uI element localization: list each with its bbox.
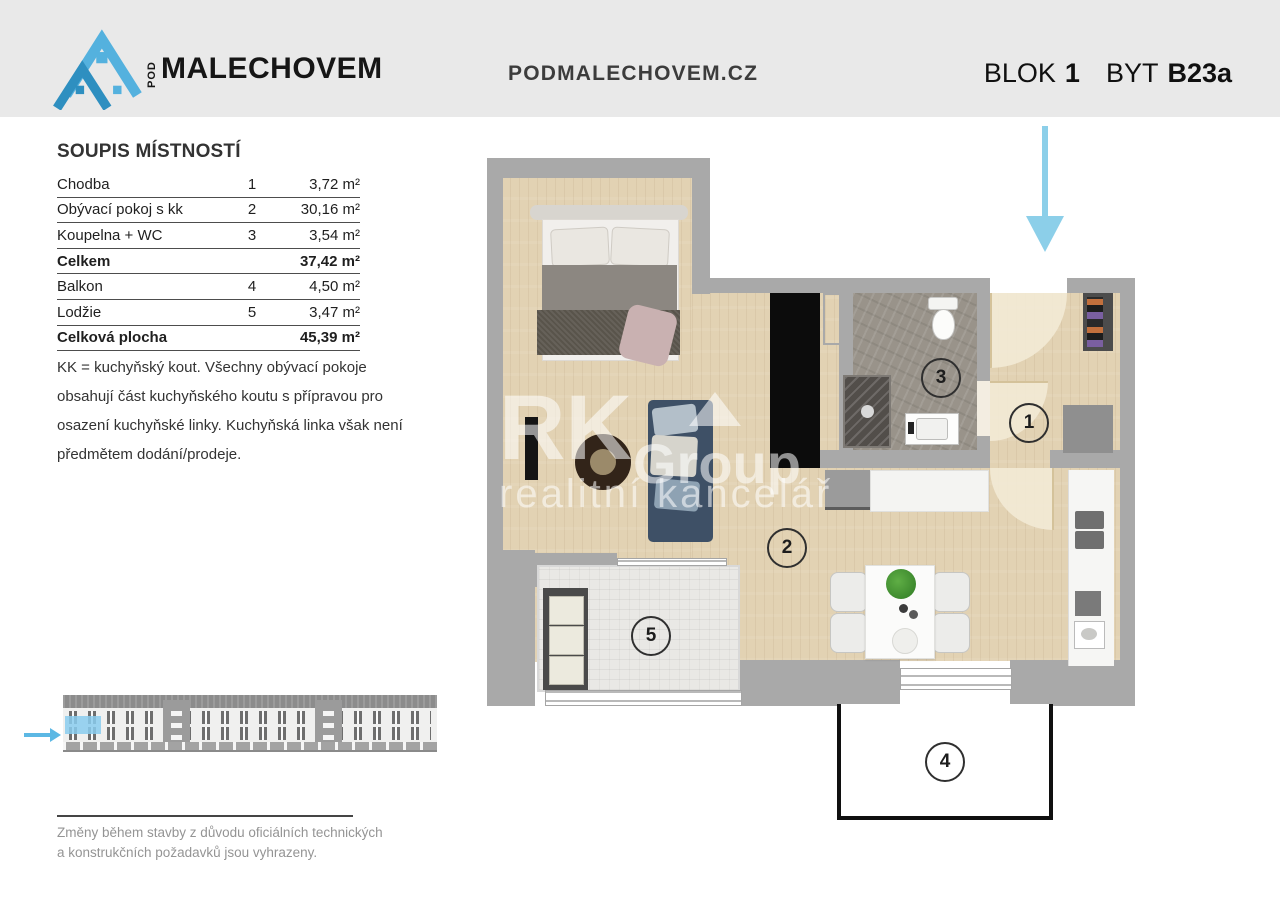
byt-label: BYT [1106,58,1159,89]
dining-chair [932,572,970,612]
cooktop [1075,531,1104,549]
kitchen-appliance [1075,591,1101,616]
wall [810,450,990,468]
sink-accessory [908,422,914,434]
plate [892,628,918,654]
bed-pillow [550,227,610,268]
room-number: 5 [232,304,272,321]
room-label-hallway: 1 [1009,403,1049,443]
balcony-sliding-door [900,668,1012,690]
elevation-stair-tower [163,700,190,744]
shoes [1087,297,1103,347]
table-decor [909,610,918,619]
unit-highlight [65,716,101,734]
bed-blanket [542,265,677,315]
loggia-window-strip [545,690,742,706]
room-number-text: 5 [646,625,657,647]
arrow-shaft [24,733,50,737]
room-number: 2 [232,201,272,218]
toilet-bowl [932,309,955,340]
room-area: 3,47 m² [272,304,360,321]
table-row: Celkem37,42 m² [57,249,360,275]
building-elevation [63,695,437,753]
kitchen-counter [1068,470,1114,666]
header: POD MALECHOVEM PODMALECHOVEM.CZ BLOK 1 B… [0,0,1280,117]
wall [977,293,990,381]
room-number-text: 2 [782,537,793,559]
block-value: 1 [1065,58,1080,89]
room-number-text: 1 [1024,412,1035,434]
room-number: 1 [232,176,272,193]
bathroom-door-opening [977,381,990,436]
loggia-shelf [543,588,588,690]
room-number-text: 3 [936,367,947,389]
unit-title: BLOK 1 BYT B23a [984,58,1232,89]
room-area: 3,54 m² [272,227,360,244]
wall [692,158,710,294]
cooktop [1075,511,1104,529]
room-number: 3 [232,227,272,244]
table-decor [899,604,908,613]
kitchen-note: KK = kuchyňský kout. Všechny obývací pok… [57,353,405,469]
elevation-ground-floor [63,742,437,750]
hallway-mat [1063,405,1113,453]
footer-divider [57,815,353,817]
room-name: Celková plocha [57,329,232,346]
watermark-subtitle: realitní kancelář [499,474,832,514]
room-name: Celkem [57,253,232,270]
room-label-balcony: 4 [925,742,965,782]
elevation-window-row [69,711,431,724]
watermark-rk: RK [499,382,632,474]
sink-basin [1081,628,1097,640]
table-row: Celková plocha45,39 m² [57,326,360,352]
shelf-cubby [549,626,584,655]
kitchen-island [870,470,989,512]
room-number-text: 4 [940,751,951,773]
website-text: PODMALECHOVEM.CZ [508,62,758,86]
table-row: Balkon44,50 m² [57,274,360,300]
bed-headboard [530,205,688,220]
room-label-bathroom: 3 [921,358,961,398]
elevation-window-row [69,727,431,740]
dining-chair [830,613,868,653]
tower-windows [171,704,182,740]
room-area: 3,72 m² [272,176,360,193]
table-row: Obývací pokoj s kk230,16 m² [57,198,360,224]
room-area: 4,50 m² [272,278,360,295]
byt-value: B23a [1167,58,1232,89]
wall [1010,660,1135,706]
wall [692,278,990,293]
room-name: Chodba [57,176,232,193]
shoe-rack [1083,293,1113,351]
room-label-loggia: 5 [631,616,671,656]
room-label-living: 2 [767,528,807,568]
elevation-roof [63,695,437,708]
page: POD MALECHOVEM PODMALECHOVEM.CZ BLOK 1 B… [0,0,1280,908]
room-name: Lodžie [57,304,232,321]
tower-windows [323,704,334,740]
logo-pod-text: POD [146,58,158,88]
kitchen-sink [1074,621,1105,649]
bed-pillow [610,227,670,268]
logo-name-text: MALECHOVEM [161,52,383,86]
room-list-title: SOUPIS MÍSTNOSTÍ [57,141,241,163]
dining-chair [830,572,868,612]
table-row: Chodba13,72 m² [57,172,360,198]
watermark-house-icon [689,392,741,426]
elevation-stair-tower [315,700,342,744]
room-name: Koupelna + WC [57,227,232,244]
arrow-head [50,728,61,742]
room-area: 37,42 m² [272,253,360,270]
room-table-body: Chodba13,72 m²Obývací pokoj s kk230,16 m… [57,172,360,351]
dining-chair [932,613,970,653]
room-area: 45,39 m² [272,329,360,346]
shower-drain [861,405,874,418]
dining-table [865,565,935,659]
disclaimer-text: Změny během stavby z důvodu oficiálních … [57,823,393,862]
plant [886,569,916,599]
shower [843,375,891,448]
table-row: Koupelna + WC33,54 m² [57,223,360,249]
block-label: BLOK [984,58,1056,89]
wall [1120,278,1135,706]
sink-basin [916,418,948,440]
bathroom-sink [905,413,959,445]
room-name: Obývací pokoj s kk [57,201,232,218]
shelf-cubby [549,596,584,625]
room-name: Balkon [57,278,232,295]
room-area: 30,16 m² [272,201,360,218]
wall [497,158,710,178]
wall [740,660,900,706]
elevation-baseline [63,750,437,752]
loggia-sliding-door [617,558,727,566]
unit-pointer-arrow [24,727,64,743]
shelf-cubby [549,656,584,685]
room-number: 4 [232,278,272,295]
table-row: Lodžie53,47 m² [57,300,360,326]
logo-house-icon [52,24,148,110]
floor-plan: 1 2 3 4 5 RK Group realitní kancelář [485,140,1137,835]
